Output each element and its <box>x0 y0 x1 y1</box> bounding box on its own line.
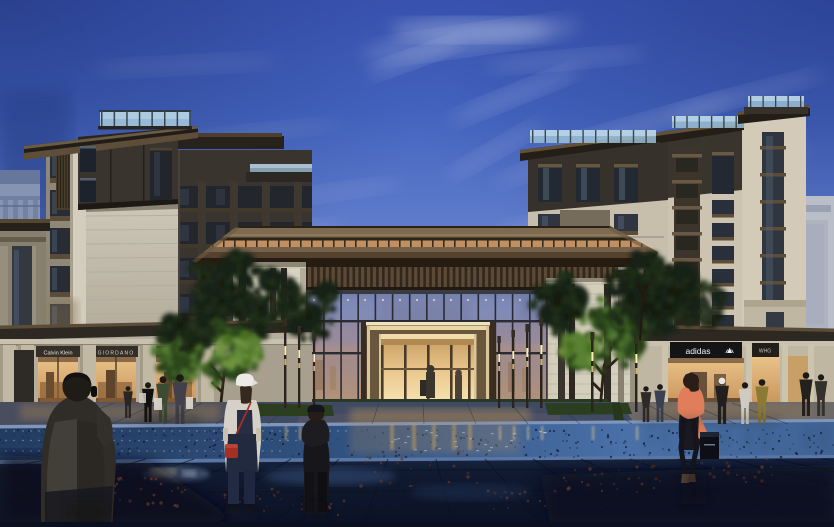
svg-text:adidas: adidas <box>685 346 710 356</box>
svg-text:GIORDANO: GIORDANO <box>98 351 135 357</box>
svg-text:WHG: WHG <box>759 349 771 355</box>
svg-text:Calvin Klein: Calvin Klein <box>43 351 72 357</box>
